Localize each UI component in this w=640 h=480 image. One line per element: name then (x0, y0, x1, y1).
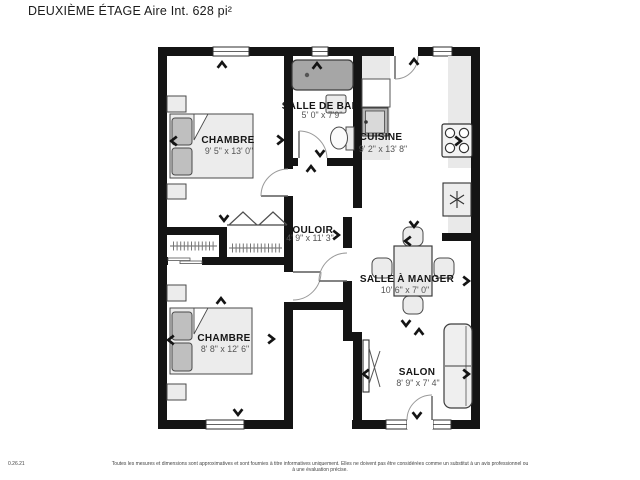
right-arrow-icon (268, 335, 274, 344)
wall-segment (343, 332, 362, 341)
window (386, 420, 407, 429)
dining-door (319, 253, 347, 281)
up-arrow-icon (307, 166, 316, 172)
dining-furniture (372, 227, 454, 314)
burner (445, 128, 454, 137)
floorplan-drawing: CHAMBRE 9' 5" x 13' 0" SALLE DE BAIN 5' … (0, 0, 640, 480)
kitchen-counter (448, 216, 471, 233)
down-arrow-icon (402, 320, 411, 326)
window (312, 47, 328, 56)
wall-segment (343, 281, 352, 332)
tv (363, 340, 369, 392)
kitchen-cabinet (362, 79, 390, 107)
room-label-cuisine: CUISINE (360, 132, 403, 143)
right-arrow-icon (333, 231, 339, 240)
room-label-chambre-2: CHAMBRE (197, 333, 250, 344)
room-label-salon: SALON (399, 367, 436, 378)
wall-segment (158, 257, 168, 265)
nightstand (167, 96, 186, 112)
right-arrow-icon (463, 277, 469, 286)
wall-segment (327, 158, 353, 166)
up-arrow-icon (415, 329, 424, 335)
wall-segment (442, 233, 480, 241)
room-label-chambre-1: CHAMBRE (201, 135, 254, 146)
wall-segment (158, 47, 167, 429)
tv-stand (369, 351, 380, 384)
tub-faucet (305, 73, 309, 77)
refrigerator (443, 183, 471, 216)
pillow (172, 118, 192, 145)
bedroom2-door (293, 272, 321, 300)
down-arrow-icon (316, 150, 325, 156)
bathtub (292, 60, 353, 90)
pillow (172, 148, 192, 175)
nightstand (167, 384, 186, 400)
floorplan-page: { "title": "DEUXIÈME ÉTAGE Aire Int. 628… (0, 0, 640, 480)
room-dims-salle-a-manger: 10' 6" x 7' 0" (381, 285, 429, 295)
pillow (172, 343, 192, 371)
wall-segment (158, 227, 227, 235)
right-arrow-icon (277, 136, 283, 145)
up-arrow-icon (217, 298, 226, 304)
salon-furniture (363, 324, 472, 408)
kitchen-sink-basin (366, 111, 385, 133)
down-arrow-icon (234, 409, 243, 415)
window (433, 420, 451, 429)
down-arrow-icon (220, 215, 229, 221)
wall-segment (343, 217, 352, 248)
entry-door (394, 47, 418, 79)
toilet-bowl (331, 127, 348, 149)
dining-chair (403, 296, 423, 314)
wall-segment (284, 302, 293, 429)
bedroom1-door (261, 169, 288, 196)
window (433, 47, 452, 56)
window (213, 47, 249, 56)
room-dims-chambre-2: 8' 8" x 12' 6" (201, 344, 249, 354)
closet-sliding-door (168, 258, 202, 264)
down-arrow-icon (413, 412, 422, 418)
nightstand (167, 184, 186, 199)
down-arrow-icon (410, 221, 419, 227)
wall-segment (202, 257, 284, 265)
closet-bifold-doors (227, 212, 287, 225)
sink-faucet (364, 120, 368, 124)
wall-segment (353, 341, 362, 429)
wall-segment (293, 302, 343, 310)
pillow (172, 312, 192, 340)
nightstand (167, 285, 186, 301)
burner (459, 143, 468, 152)
burner (459, 128, 468, 137)
room-label-salle-a-manger: SALLE À MANGER (360, 272, 455, 285)
burner (445, 143, 454, 152)
window (206, 420, 244, 429)
sofa (444, 324, 472, 408)
stove (442, 124, 472, 157)
room-dims-salon: 8' 9" x 7' 4" (396, 378, 439, 388)
room-dims-chambre-1: 9' 5" x 13' 0" (205, 146, 253, 156)
wall-segment (284, 158, 298, 166)
up-arrow-icon (410, 59, 419, 65)
footer-version: 0.26.21 (8, 461, 25, 467)
room-dims-salle-de-bain: 5' 0" x 7'9" (302, 110, 343, 120)
room-dims-cuisine: 9' 2" x 13' 8" (359, 144, 407, 154)
up-arrow-icon (218, 62, 227, 68)
room-dims-couloir: 4' 9" x 11' 3" (286, 233, 334, 243)
footer-disclaimer: Toutes les mesures et dimensions sont ap… (110, 461, 530, 473)
